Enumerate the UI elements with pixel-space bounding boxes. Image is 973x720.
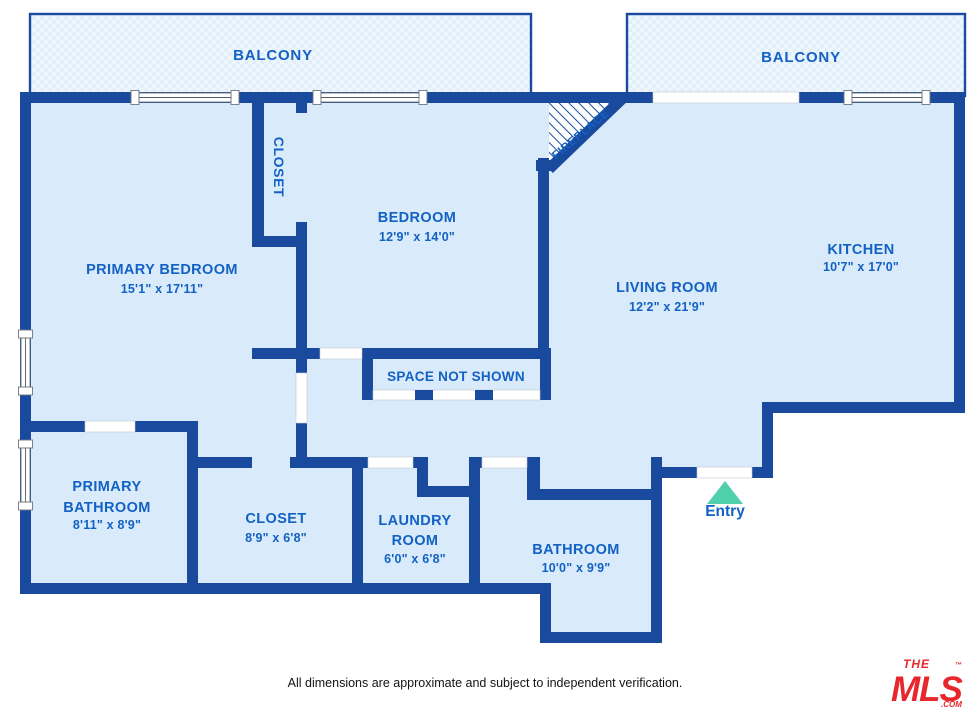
closet-upper-label: CLOSET (271, 137, 287, 197)
unit-floor (20, 92, 965, 643)
balcony-left-label: BALCONY (233, 47, 313, 64)
entry-door (697, 467, 752, 478)
logo-the-text: THE (903, 657, 930, 671)
window-kitchen-top (844, 91, 930, 105)
room-label-primary-bathroom-1: PRIMARY (72, 479, 141, 495)
space-not-shown-label: SPACE NOT SHOWN (387, 369, 525, 384)
room-dims-bedroom: 12'9" x 14'0" (379, 230, 455, 244)
logo-com-text: .COM (941, 700, 962, 709)
room-dims-living-room: 12'2" x 21'9" (629, 300, 705, 314)
room-label-primary-bathroom-2: BATHROOM (63, 500, 151, 516)
laundry-door (368, 457, 413, 468)
room-dims-bathroom: 10'0" x 9'9" (542, 561, 611, 575)
entry-arrow-icon (707, 481, 743, 504)
primary-suite-door (296, 373, 307, 423)
balcony-right-label: BALCONY (761, 49, 841, 66)
room-dims-laundry: 6'0" x 6'8" (384, 552, 446, 566)
bathroom-door (482, 457, 527, 468)
window-primary-bedroom-top (131, 91, 239, 105)
room-dims-primary-bathroom: 8'11" x 8'9" (73, 518, 141, 532)
window-primary-bedroom-left (19, 330, 33, 395)
floor-plan-svg: BALCONY BALCONY CLOSET FIREPLACE PRIMARY… (0, 0, 973, 720)
themls-logo: THE MLS ™ .COM (891, 657, 963, 709)
primary-bedroom-door (85, 421, 135, 432)
room-label-bedroom: BEDROOM (378, 210, 457, 226)
window-primary-bathroom-left (19, 440, 33, 510)
sliding-door (653, 92, 799, 103)
entry-label: Entry (705, 503, 745, 520)
window-bedroom-top (313, 91, 427, 105)
room-label-kitchen: KITCHEN (827, 242, 894, 258)
floor-plan-page: BALCONY BALCONY CLOSET FIREPLACE PRIMARY… (0, 0, 973, 720)
logo-tm-text: ™ (955, 662, 962, 669)
room-dims-closet: 8'9" x 6'8" (245, 531, 307, 545)
room-dims-primary-bedroom: 15'1" x 17'11" (121, 282, 203, 296)
room-label-laundry-2: ROOM (392, 533, 439, 549)
room-dims-kitchen: 10'7" x 17'0" (823, 260, 899, 274)
disclaimer-text: All dimensions are approximate and subje… (288, 676, 683, 690)
room-label-bathroom: BATHROOM (532, 542, 620, 558)
space-not-shown-dashed-wall (373, 390, 540, 400)
bedroom-door (320, 348, 362, 359)
room-label-closet: CLOSET (245, 511, 306, 527)
room-label-laundry-1: LAUNDRY (378, 513, 451, 529)
room-label-primary-bedroom: PRIMARY BEDROOM (86, 262, 238, 278)
room-label-living-room: LIVING ROOM (616, 280, 718, 296)
